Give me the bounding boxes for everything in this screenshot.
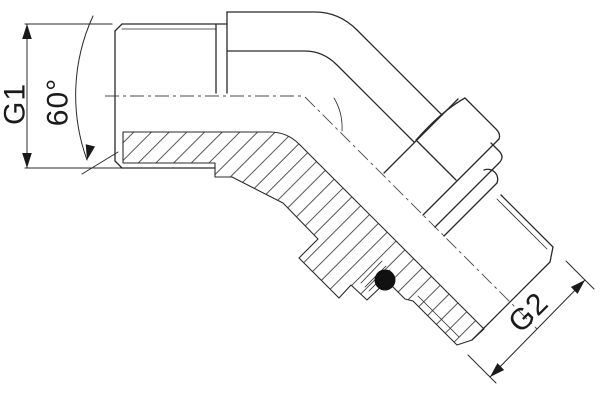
chamfer-top xyxy=(115,24,122,31)
nut-outer-edge xyxy=(465,98,500,139)
g1-label: G1 xyxy=(0,83,32,125)
hex-body-bend xyxy=(227,12,442,142)
section-cut-region xyxy=(123,132,484,345)
chamfer-bottom xyxy=(115,161,122,168)
end-chamfer-upper xyxy=(550,247,553,262)
thread-crest-upper xyxy=(501,195,553,247)
retaining-ring xyxy=(444,169,498,236)
g2-label: G2 xyxy=(502,286,555,339)
section-hatching xyxy=(123,132,484,345)
nut-trailing-face xyxy=(423,139,499,215)
angle-label: 60° xyxy=(42,78,75,126)
drawing-canvas: G1 60° G2 xyxy=(0,0,600,400)
hex-flat-edge xyxy=(227,51,414,142)
bore-bend-fillet xyxy=(334,98,342,131)
washer xyxy=(435,143,502,227)
washer-edge xyxy=(435,143,502,227)
angle-dimension: 60° xyxy=(42,16,119,174)
nut-flat-boundary xyxy=(416,140,456,180)
angle-arc xyxy=(76,16,93,160)
thread-root-upper xyxy=(497,199,547,249)
arrowhead xyxy=(22,24,32,39)
elbow-fitting-drawing: G1 60° G2 xyxy=(0,0,600,400)
arrowhead xyxy=(22,153,32,168)
extension-line-lower xyxy=(468,355,496,383)
o-ring-seal xyxy=(375,270,396,291)
